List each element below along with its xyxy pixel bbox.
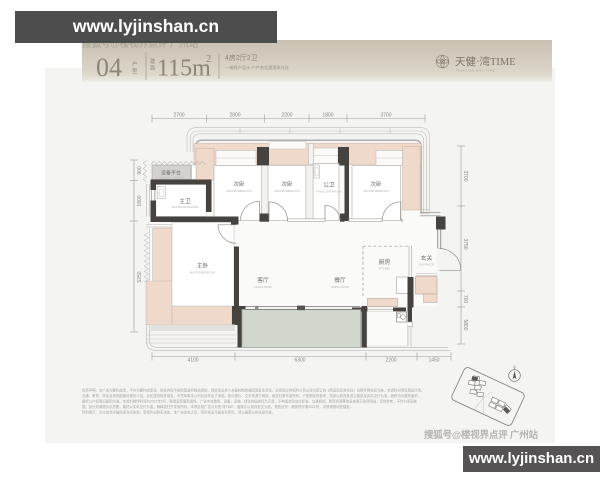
svg-text:TIANJIAN BAY TIME: TIANJIAN BAY TIME [456,69,496,73]
svg-text:面: 面 [150,66,155,72]
svg-text:一梯两户设计 户户南北通透采光佳: 一梯两户设计 户户南北通透采光佳 [225,64,289,71]
svg-text:次卧: 次卧 [370,180,382,188]
svg-text:04: 04 [96,53,122,82]
svg-text:1800: 1800 [137,195,143,206]
svg-text:搜狐号@楼视界点评 广州站: 搜狐号@楼视界点评 广州站 [424,429,539,441]
svg-text:免责声明：本广告为要约邀请，不作为要约或承诺，相关内容不排除: 免责声明：本广告为要约邀请，不作为要约或承诺，相关内容不排除因政府相关规划、规定… [82,388,424,393]
svg-text:PUBLIC BATHROOM: PUBLIC BATHROOM [317,190,342,194]
svg-text:餐厅: 餐厅 [334,276,346,284]
svg-text:DINING ROOM: DINING ROOM [331,285,349,289]
svg-text:115m: 115m [157,56,211,82]
svg-text:MASTER BATHROOM: MASTER BATHROOM [172,205,198,209]
svg-text:KITCHEN: KITCHEN [379,267,391,271]
svg-text:主卫: 主卫 [179,197,191,205]
svg-text:2200: 2200 [385,358,396,364]
svg-text:SECOND BEDROOM: SECOND BEDROOM [363,189,388,193]
svg-text:900: 900 [137,166,143,175]
svg-text:设备平台: 设备平台 [161,170,181,177]
svg-text:厨房: 厨房 [379,258,391,266]
svg-text:2800: 2800 [229,113,240,119]
svg-text:700: 700 [462,295,468,304]
svg-text:SECOND BEDROOM: SECOND BEDROOM [274,189,299,193]
svg-text:5800: 5800 [462,319,468,330]
svg-text:SECOND BEDROOM: SECOND BEDROOM [226,189,251,193]
svg-text:交通、教育、商业及其他配套设施的介绍，旨在提供相关信息，不意: 交通、教育、商业及其他配套设施的介绍，旨在提供相关信息，不意味着本公司对此作出了… [82,393,421,398]
svg-text:天健·湾TIME: 天健·湾TIME [455,55,516,68]
svg-text:次卧: 次卧 [281,180,293,188]
svg-text:3700: 3700 [380,113,391,119]
svg-text:客厅: 客厅 [257,276,269,284]
svg-text:ENTRANCE: ENTRANCE [419,263,434,267]
svg-text:特别提示：买方应当仔细阅读合同条款，审慎作出购买决定。本广告: 特别提示：买方应当仔细阅读合同条款，审慎作出购买决定。本广告发布之后，项目信息可… [82,410,275,415]
svg-text:MASTER BEDROOM: MASTER BEDROOM [190,271,215,275]
svg-text:5250: 5250 [137,271,143,282]
svg-text:据。部分效果图为示意图，最终以实际交付为准。解释权归开发商所: 据。部分效果图为示意图，最终以实际交付为准。解释权归开发商所有。本项目推广名为天… [82,404,353,409]
svg-text:建: 建 [150,58,155,65]
svg-text:1450: 1450 [428,358,439,364]
svg-text:型: 型 [132,67,138,75]
svg-text:玄关: 玄关 [421,254,433,262]
svg-text:2: 2 [206,54,211,65]
svg-text:3700: 3700 [462,170,468,181]
svg-text:次卧: 次卧 [233,180,245,188]
svg-text:2700: 2700 [173,113,184,119]
svg-text:4房2厅2卫: 4房2厅2卫 [225,53,258,62]
svg-text:4100: 4100 [187,358,198,364]
svg-text:最终以产权登记面积为准。本资料制作时间为2021年9月，敬请: 最终以产权登记面积为准。本资料制作时间为2021年9月，敬请留意最新资料。广告中… [82,399,418,404]
svg-text:3750: 3750 [462,238,468,249]
svg-text:LIVING ROOM: LIVING ROOM [254,285,271,289]
svg-text:EQUIPMENT PLATFORM: EQUIPMENT PLATFORM [158,176,183,179]
svg-text:6300: 6300 [294,358,305,364]
svg-text:1800: 1800 [322,113,333,119]
svg-text:公卫: 公卫 [323,182,335,189]
svg-text:2200: 2200 [281,113,292,119]
svg-text:户: 户 [132,60,138,68]
svg-text:主卧: 主卧 [197,262,209,270]
